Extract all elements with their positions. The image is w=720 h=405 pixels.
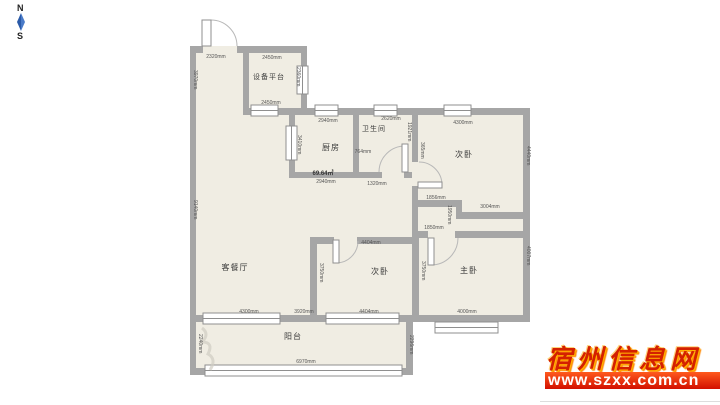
dim-hall-bottom: 1320mm xyxy=(367,181,386,187)
dim-bath-right: 1921mm xyxy=(406,122,412,141)
dim-platform-bottom: 2450mm xyxy=(261,100,280,106)
dim-balcony-right: 2296mm xyxy=(408,335,414,354)
compass-needle-icon xyxy=(17,13,25,31)
dim-entry-left: 3970mm xyxy=(192,70,198,89)
dim-master-bottom: 4000mm xyxy=(457,309,476,315)
room-label-balcony: 阳台 xyxy=(284,331,302,342)
floorplan-page: N S 设备平台 厨房 卫生间 次卧 客餐厅 次卧 主卧 阳台 69.64㎡ 2… xyxy=(0,0,720,405)
dim-bedroom3-bottom: 4404mm xyxy=(359,309,378,315)
compass-south-label: S xyxy=(17,31,23,41)
entry-door-icon xyxy=(202,20,237,46)
dim-entry-top: 2320mm xyxy=(206,54,225,60)
watermark-site-url: www.szxx.com.cn xyxy=(545,372,720,389)
dim-bedroom2-right: 4440mm xyxy=(525,146,531,165)
room-label-master-bedroom: 主卧 xyxy=(460,265,478,276)
room-label-equipment-platform: 设备平台 xyxy=(253,72,285,82)
dim-kitchen-left: 3410mm xyxy=(296,135,302,154)
dim-balcony-bottom: 6970mm xyxy=(296,359,315,365)
dim-hall-width: 365mm xyxy=(419,142,425,159)
dim-kitchen-top: 2940mm xyxy=(318,118,337,124)
dim-bedroom2-top: 4300mm xyxy=(453,120,472,126)
dim-bedroom2-bottom-right: 3004mm xyxy=(480,204,499,210)
dim-balcony-left: 2240mm xyxy=(197,334,203,353)
dim-master-right: 4007mm xyxy=(525,246,531,265)
dim-platform-top: 2450mm xyxy=(262,55,281,61)
dim-platform-right: 2360mm xyxy=(295,67,301,86)
dim-bath-top: 2620mm xyxy=(381,116,400,122)
room-label-bedroom-top: 次卧 xyxy=(455,149,473,160)
dim-bedroom3-top: 4404mm xyxy=(361,240,380,246)
dim-living-bottom-right: 3920mm xyxy=(294,309,313,315)
dim-hall-jog: 1950mm xyxy=(446,205,452,224)
dim-bedroom3-right: 3750mm xyxy=(420,261,426,280)
dim-living-left: 9140mm xyxy=(192,200,198,219)
watermark-site-name: 宿州信息网 xyxy=(546,347,701,373)
dim-kitchen-bottom: 2940mm xyxy=(316,179,335,185)
bay-window xyxy=(435,322,498,333)
dim-living-bottom: 4300mm xyxy=(239,309,258,315)
room-label-kitchen: 厨房 xyxy=(322,142,340,153)
dim-bath-door: 764mm xyxy=(355,149,372,155)
dim-bedroom2-bottom-left: 1856mm xyxy=(426,195,445,201)
dim-master-top: 1850mm xyxy=(424,225,443,231)
watermark-divider xyxy=(540,401,720,402)
room-label-living-dining: 客餐厅 xyxy=(222,262,249,273)
dim-bedroom3-left: 3750mm xyxy=(318,263,324,282)
room-label-bedroom-mid: 次卧 xyxy=(371,266,389,277)
area-label: 69.64㎡ xyxy=(312,171,333,177)
compass-north-label: N xyxy=(17,3,24,13)
room-label-bathroom: 卫生间 xyxy=(362,124,386,134)
